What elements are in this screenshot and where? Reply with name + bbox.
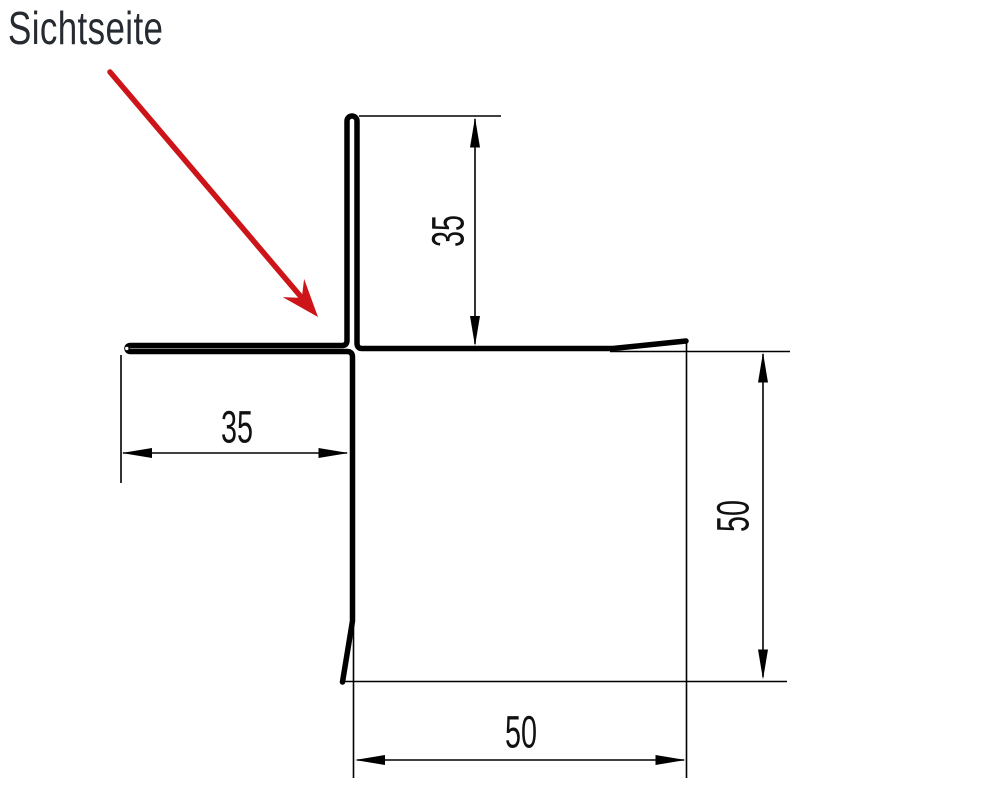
dimension-label-bottom-width: 50 <box>505 708 537 758</box>
profile-drawing-svg: 35 35 50 50 <box>0 0 992 792</box>
profile-outline <box>127 116 686 682</box>
dimension-label-left-leg: 35 <box>221 403 253 453</box>
visible-side-arrow <box>110 72 318 317</box>
arrowhead-down-icon <box>758 650 768 680</box>
dimension-right-height: 50 <box>610 352 790 680</box>
red-arrow-shaft <box>110 72 302 298</box>
arrowhead-down-icon <box>470 316 480 346</box>
dimension-bottom-width: 50 <box>354 339 687 778</box>
arrowhead-right-icon <box>319 448 349 458</box>
dimension-label-upstand: 35 <box>424 215 474 247</box>
dimension-upstand: 35 <box>359 116 501 346</box>
arrowhead-up-icon <box>758 353 768 383</box>
dimension-label-right-height: 50 <box>709 500 759 532</box>
arrowhead-left-icon <box>355 755 385 765</box>
arrowhead-right-icon <box>656 755 686 765</box>
arrowhead-up-icon <box>470 118 480 148</box>
visible-side-label: Sichtseite <box>8 0 163 56</box>
dimension-left-leg: 35 <box>121 355 349 483</box>
hem-fold-gap-dot <box>125 347 128 350</box>
technical-drawing: 35 35 50 50 <box>0 0 992 792</box>
arrowhead-left-icon <box>122 448 152 458</box>
